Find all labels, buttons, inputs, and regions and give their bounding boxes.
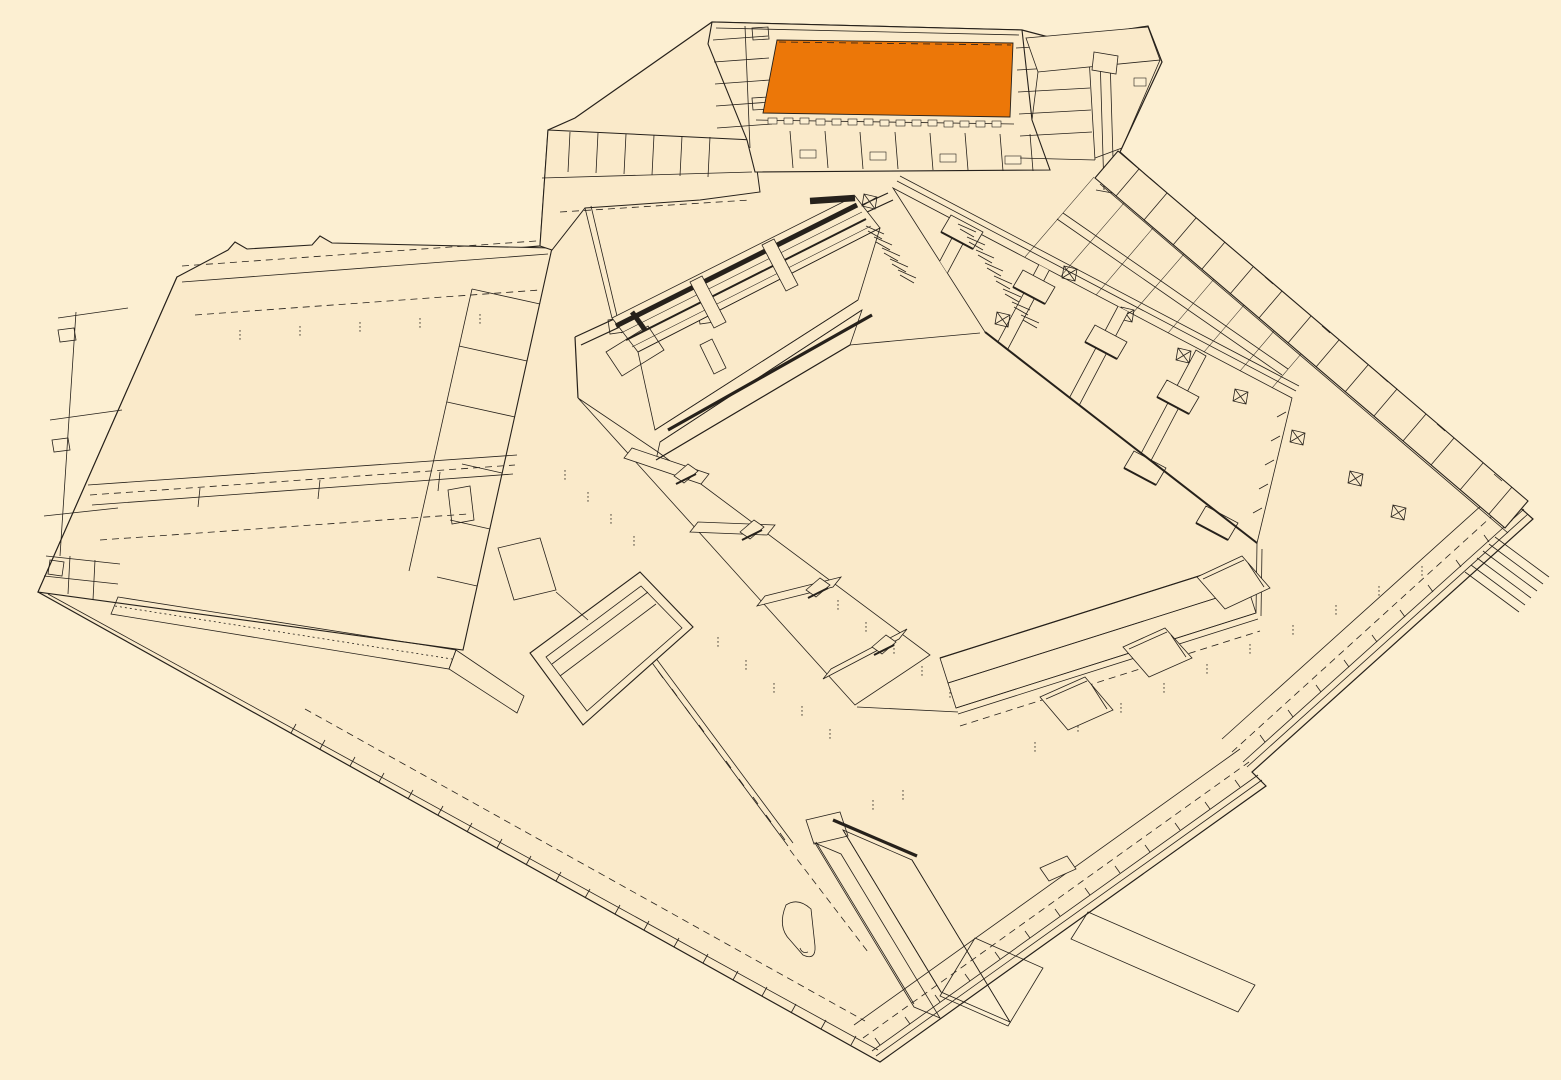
drawing-stage bbox=[0, 0, 1561, 1080]
highlighted-hall bbox=[763, 40, 1013, 117]
drawing-canvas bbox=[0, 0, 1561, 1080]
